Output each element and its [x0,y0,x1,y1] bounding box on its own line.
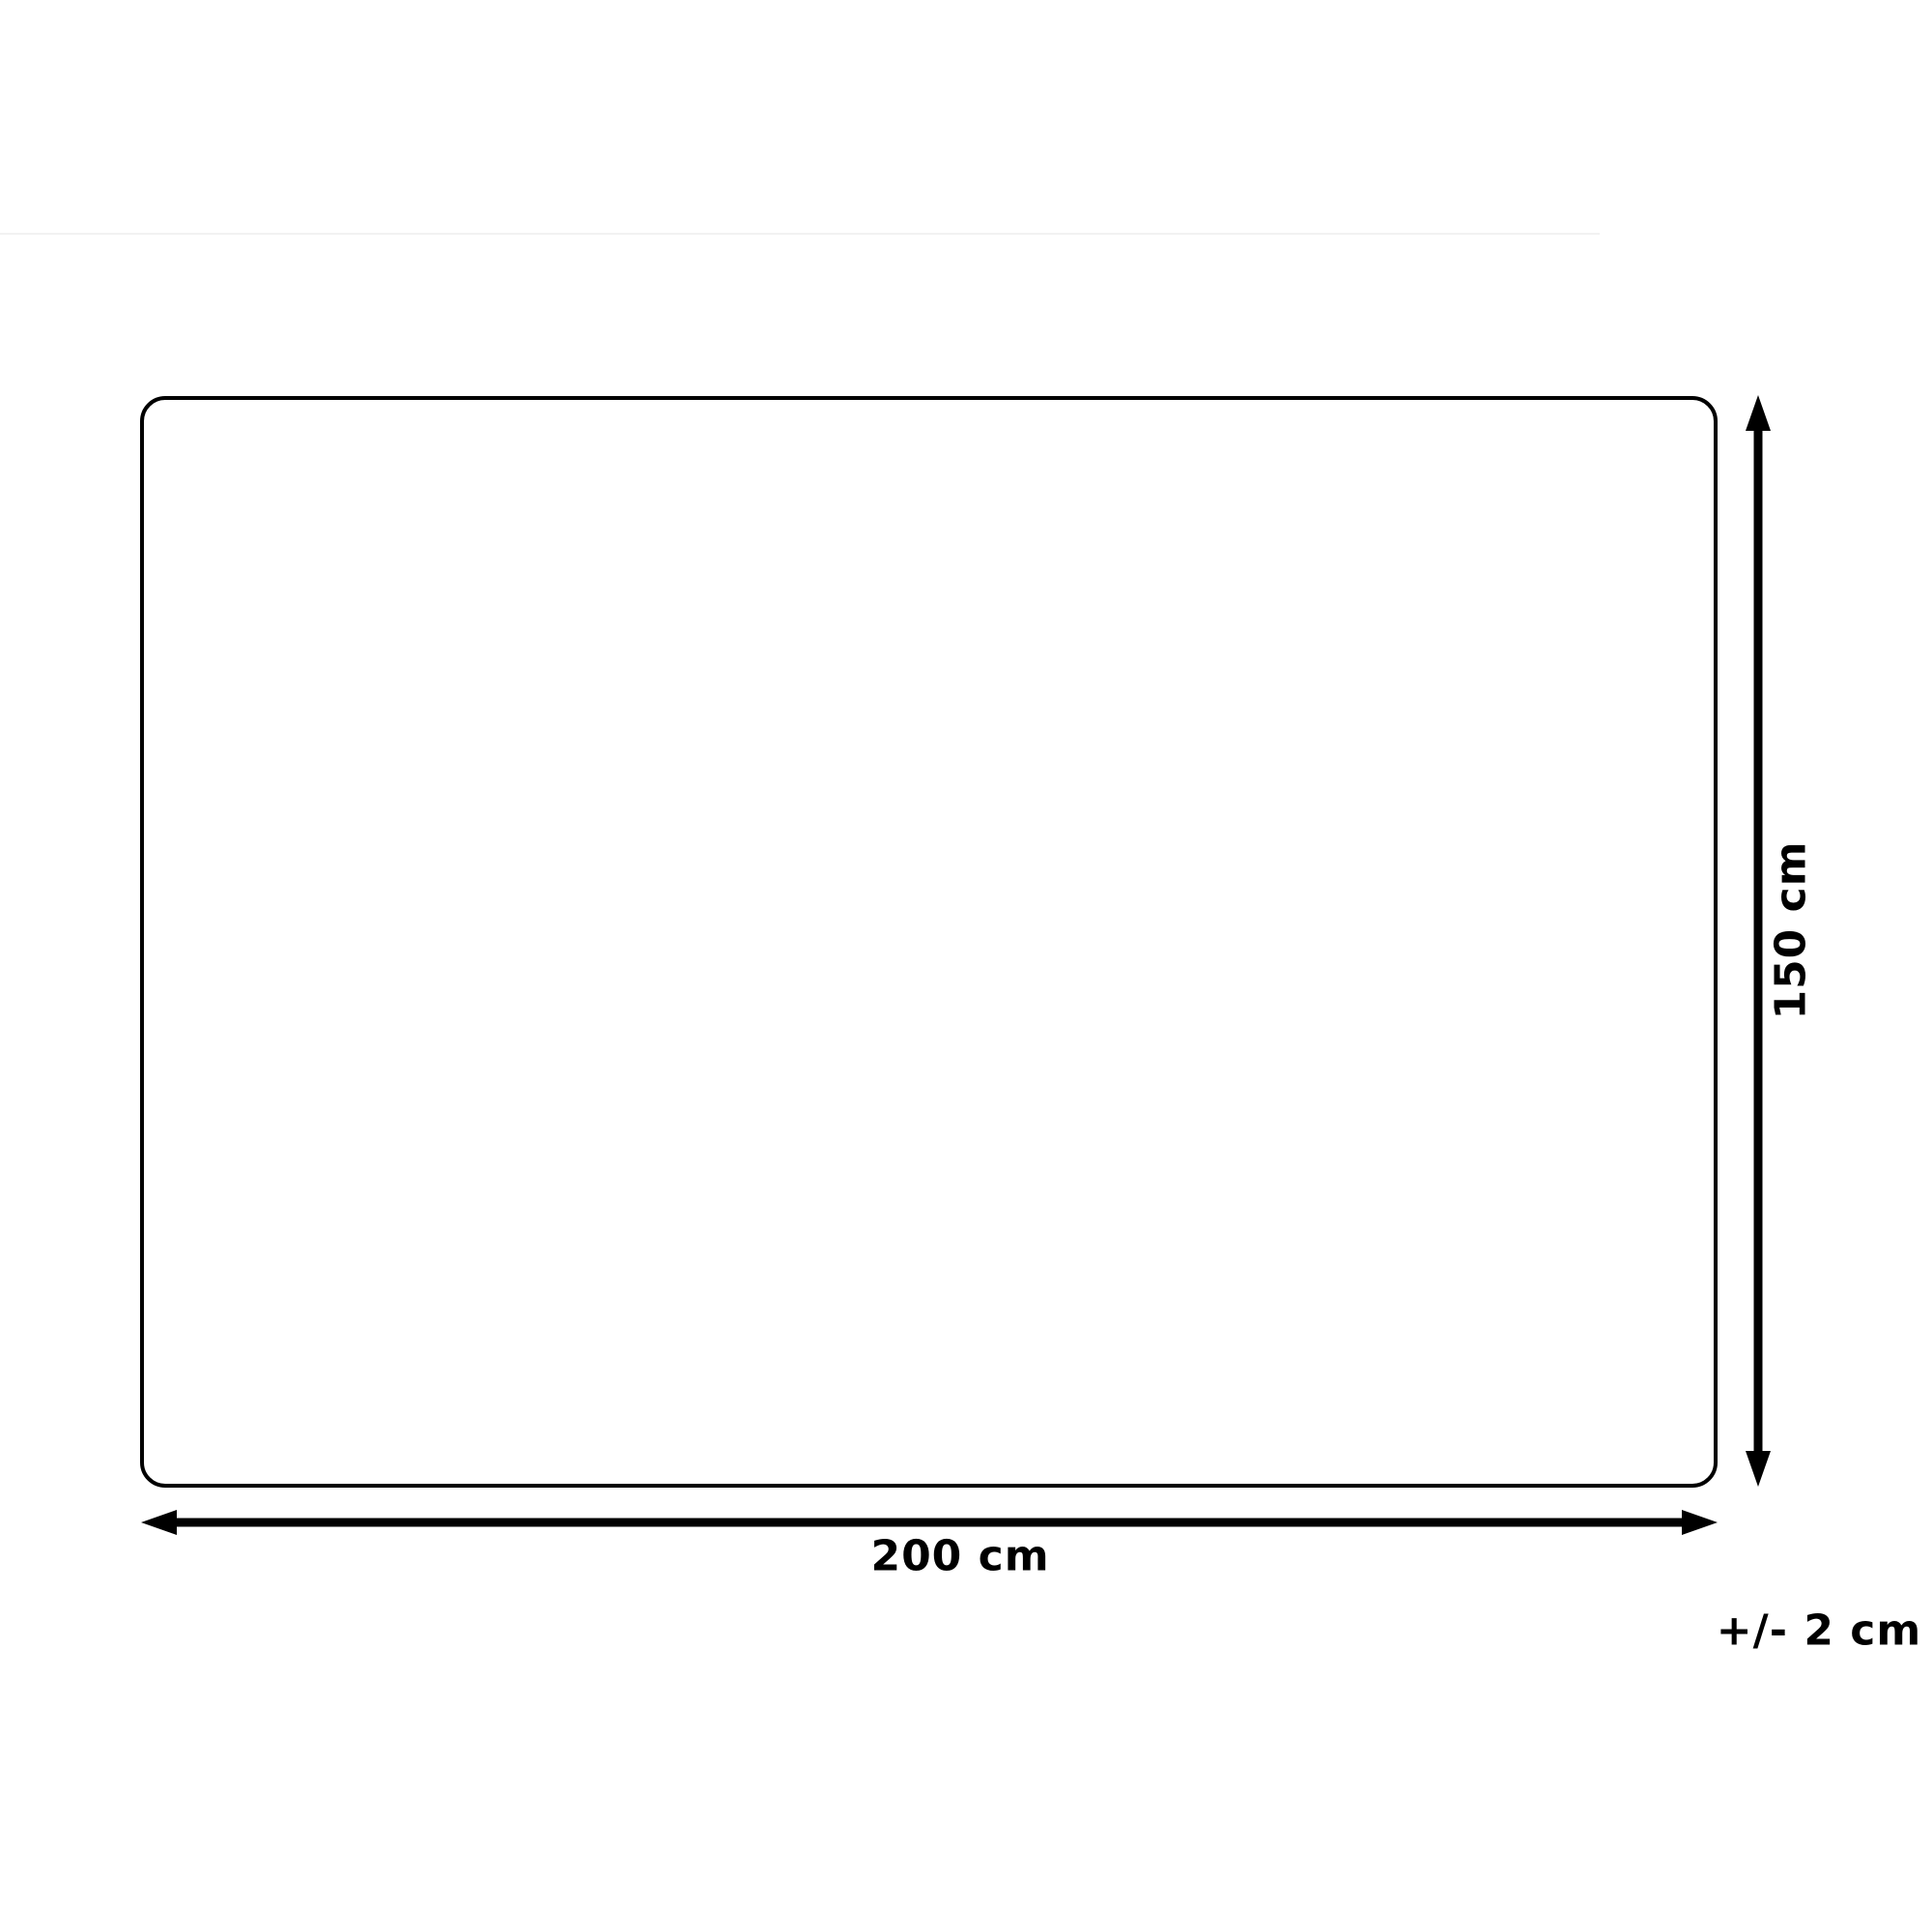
tolerance-label: +/- 2 cm [1717,1606,1921,1656]
arrowhead-right-icon [1682,1510,1718,1535]
height-dimension-label: 150 cm [1767,840,1816,1019]
top-divider-line [0,233,1600,235]
product-outline [140,396,1718,1488]
arrowhead-down-icon [1746,1451,1771,1487]
arrowhead-left-icon [141,1510,177,1535]
arrowhead-up-icon [1746,395,1771,431]
dimension-diagram-page: 150 cm 200 cm +/- 2 cm [0,0,1932,1932]
width-dimension-label: 200 cm [870,1532,1049,1581]
